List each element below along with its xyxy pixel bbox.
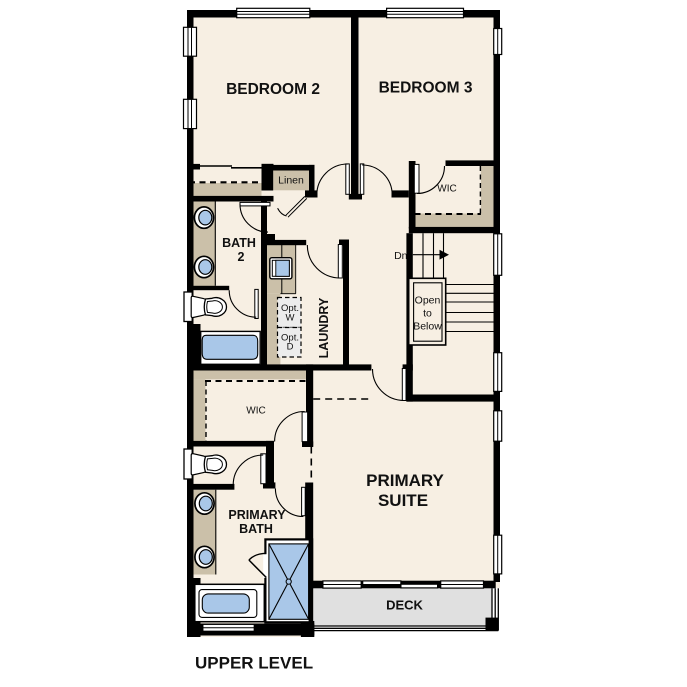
svg-text:SUITE: SUITE <box>378 491 428 510</box>
svg-text:W: W <box>286 313 295 324</box>
svg-text:PRIMARY: PRIMARY <box>366 471 444 490</box>
svg-text:DECK: DECK <box>386 598 423 613</box>
svg-text:Linen: Linen <box>278 175 304 187</box>
svg-text:Dn: Dn <box>394 250 408 262</box>
svg-text:BEDROOM 2: BEDROOM 2 <box>226 81 320 98</box>
svg-text:BATH: BATH <box>239 522 273 536</box>
svg-text:Below: Below <box>413 321 442 333</box>
svg-text:D: D <box>287 342 294 353</box>
svg-text:LAUNDRY: LAUNDRY <box>317 297 331 358</box>
svg-text:2: 2 <box>238 250 245 264</box>
svg-text:WIC: WIC <box>437 184 456 195</box>
svg-text:Open: Open <box>415 295 441 307</box>
svg-text:BATH: BATH <box>222 236 256 250</box>
svg-text:BEDROOM 3: BEDROOM 3 <box>379 80 473 97</box>
svg-text:to: to <box>423 308 432 320</box>
svg-text:UPPER LEVEL: UPPER LEVEL <box>195 654 313 673</box>
svg-text:PRIMARY: PRIMARY <box>228 508 286 522</box>
svg-text:WIC: WIC <box>246 406 265 417</box>
